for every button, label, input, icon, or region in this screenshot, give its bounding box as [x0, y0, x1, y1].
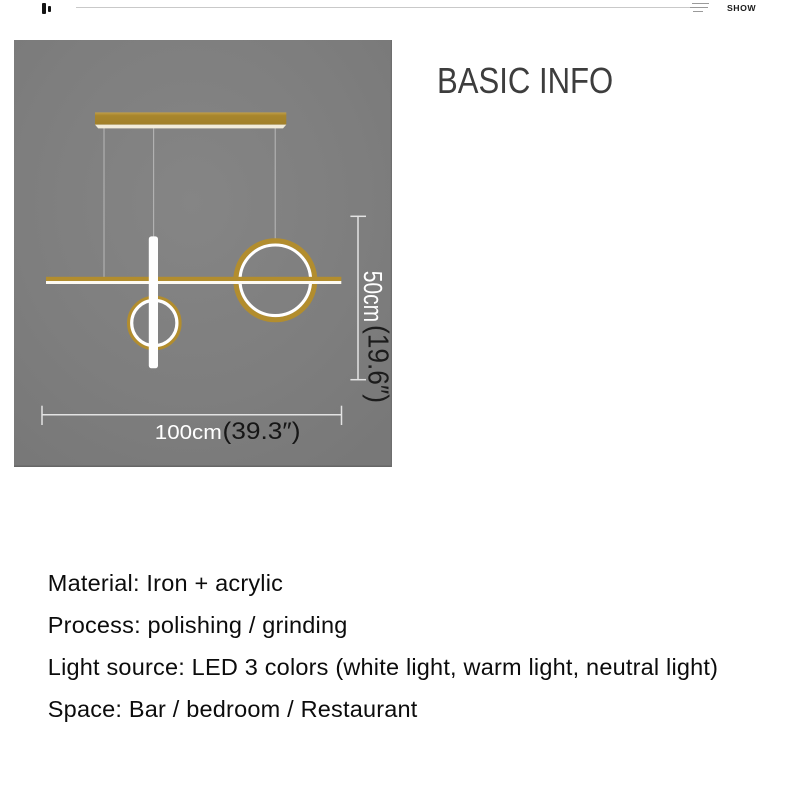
svg-text:50cm: 50cm	[358, 271, 386, 323]
svg-text:(39.3″): (39.3″)	[223, 418, 301, 445]
svg-text:(19.6″): (19.6″)	[361, 325, 392, 403]
svg-text:100cm: 100cm	[155, 422, 222, 444]
